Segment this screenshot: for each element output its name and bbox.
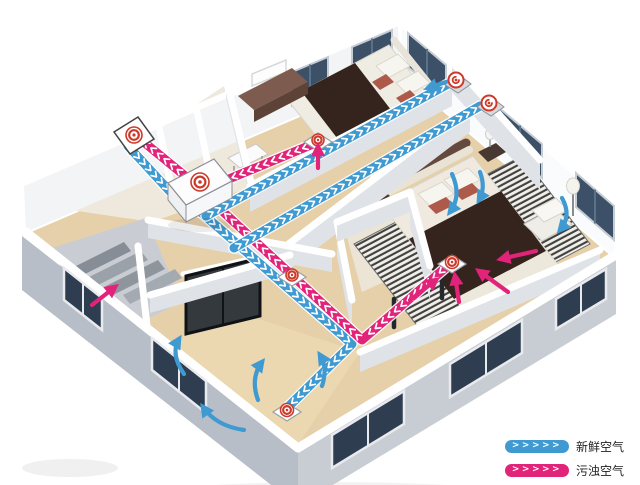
- polluted-air-label: 污浊空气: [576, 462, 624, 479]
- polluted-air-chevrons-icon: >>>>>: [505, 464, 569, 477]
- legend-item-fresh-air: >>>>> 新鲜空气: [505, 438, 624, 455]
- fresh-air-chevrons-icon: >>>>>: [505, 440, 569, 453]
- legend-item-polluted-air: >>>>> 污浊空气: [505, 462, 624, 479]
- isometric-house-scene: [0, 0, 640, 485]
- home-ventilation-illustration: >>>>> 新鲜空气 >>>>> 污浊空气: [0, 0, 640, 485]
- fresh-air-label: 新鲜空气: [576, 438, 624, 455]
- legend: >>>>> 新鲜空气 >>>>> 污浊空气: [505, 438, 624, 479]
